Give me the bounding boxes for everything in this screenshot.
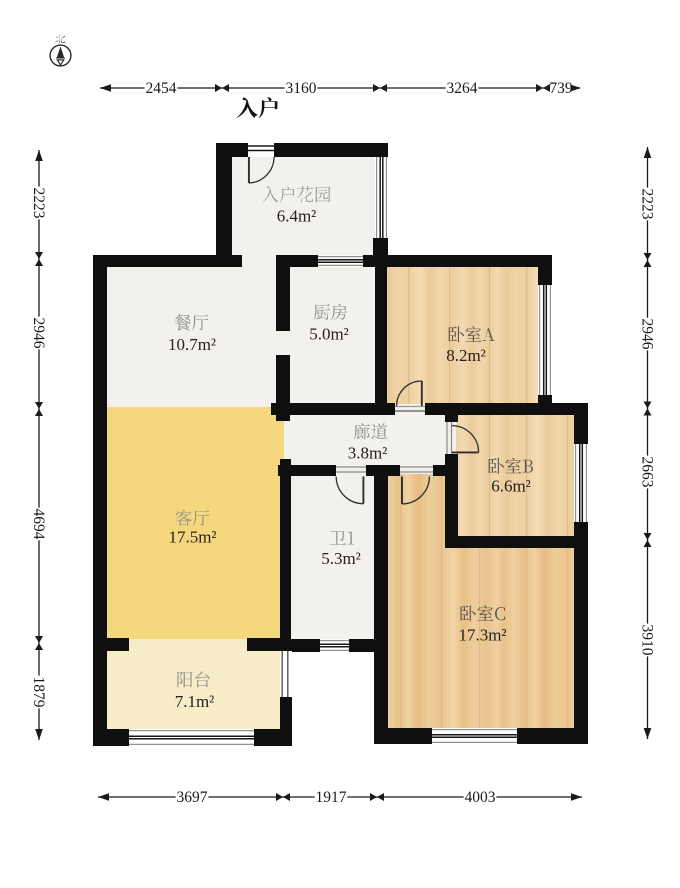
svg-text:3.8m²: 3.8m² [348,444,388,463]
svg-text:6.4m²: 6.4m² [277,207,317,226]
svg-text:739: 739 [549,80,573,97]
svg-text:17.5m²: 17.5m² [168,528,216,547]
svg-text:2946: 2946 [30,318,47,349]
svg-text:4003: 4003 [465,789,496,806]
svg-text:2454: 2454 [146,80,177,97]
svg-text:10.7m²: 10.7m² [168,335,216,354]
svg-text:5.0m²: 5.0m² [309,325,349,344]
svg-text:7.1m²: 7.1m² [175,692,215,711]
svg-text:3160: 3160 [286,80,317,97]
svg-text:3264: 3264 [447,80,478,97]
svg-text:1879: 1879 [30,677,47,708]
svg-text:3697: 3697 [177,789,208,806]
svg-text:5.3m²: 5.3m² [321,549,361,568]
svg-text:2223: 2223 [638,189,655,220]
svg-text:6.6m²: 6.6m² [491,477,531,496]
svg-text:1917: 1917 [316,789,347,806]
svg-text:4694: 4694 [30,509,47,540]
svg-text:2663: 2663 [638,457,655,488]
svg-text:3910: 3910 [638,625,655,656]
svg-text:2946: 2946 [638,319,655,350]
svg-text:17.3m²: 17.3m² [458,626,506,645]
svg-text:2223: 2223 [30,188,47,219]
svg-text:8.2m²: 8.2m² [446,346,486,365]
